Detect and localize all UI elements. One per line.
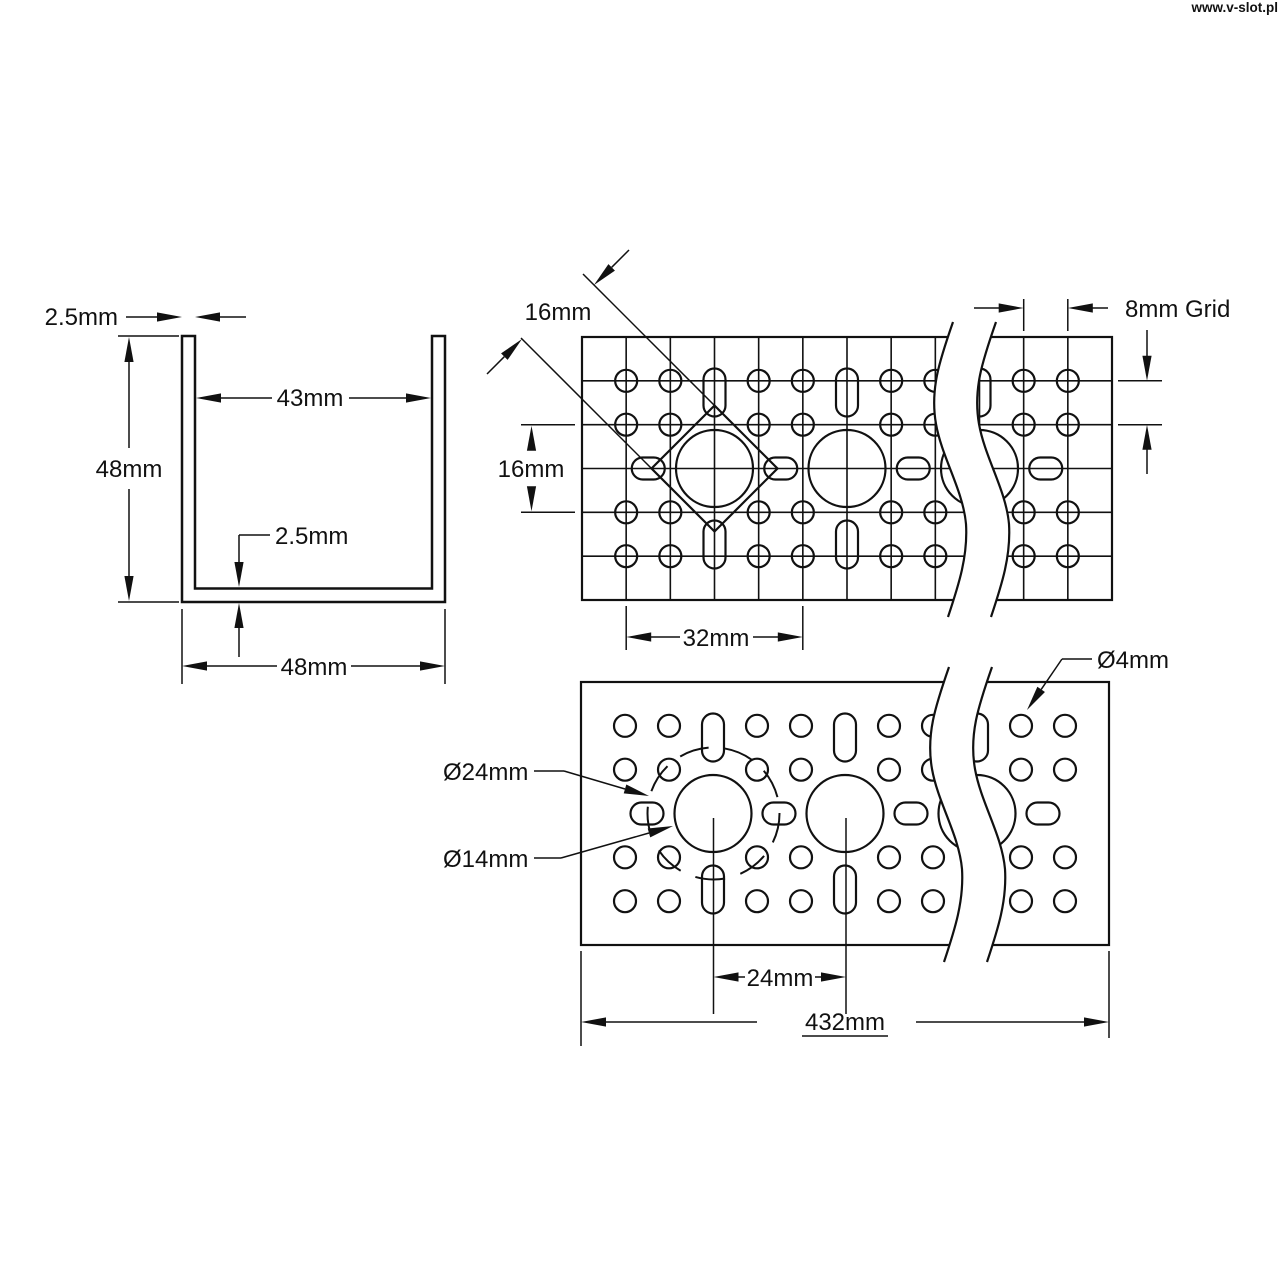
dimension-line [612, 250, 629, 267]
dimension-arrowhead [1142, 425, 1151, 450]
cross-section-view: 2.5mm 43mm 48mm 2.5mm 48mm [45, 304, 445, 684]
small-hole [614, 890, 636, 912]
dimension-arrowhead [1068, 303, 1093, 312]
small-hole [1054, 846, 1076, 868]
dim-square-size-label: 16mm [525, 299, 592, 326]
small-hole [614, 759, 636, 781]
dimension-arrowhead [527, 486, 536, 511]
dimension-arrowhead [1027, 687, 1045, 710]
vertical-slot [834, 714, 856, 762]
dimension-arrowhead [778, 632, 803, 641]
plate-view: Ø4mm Ø24mm Ø14mm 24mm 432mm [443, 647, 1169, 1046]
small-hole [746, 715, 768, 737]
dim-bolt-circle-label: Ø24mm [443, 759, 528, 786]
u-channel-outline [182, 336, 445, 602]
small-hole [922, 846, 944, 868]
dim-height-label: 48mm [96, 456, 163, 483]
face-grid-view: 16mm 16mm 32mm 8mm Grid [487, 250, 1230, 652]
small-hole [658, 715, 680, 737]
horizontal-slot [895, 803, 928, 825]
small-hole [878, 846, 900, 868]
dimension-arrowhead [234, 603, 243, 628]
small-hole [790, 890, 812, 912]
dim-32mm-label: 32mm [683, 625, 750, 652]
plate-hole-pattern [614, 714, 1076, 914]
dimension-line [487, 357, 504, 374]
dim-inner-width-label: 43mm [277, 385, 344, 412]
small-hole [1010, 715, 1032, 737]
dimension-arrowhead [626, 632, 651, 641]
dimension-arrowhead [124, 337, 133, 362]
small-hole [1054, 715, 1076, 737]
small-hole [1010, 759, 1032, 781]
small-hole [658, 759, 680, 781]
dimension-arrowhead [648, 826, 673, 837]
dimension-line [1041, 659, 1062, 689]
small-hole [790, 759, 812, 781]
watermark: www.v-slot.pl [1190, 0, 1278, 15]
small-hole [1054, 890, 1076, 912]
break-lines-bottom [930, 667, 1005, 962]
break-blank-band [934, 322, 1009, 617]
small-hole [878, 890, 900, 912]
dimension-arrowhead [234, 562, 243, 587]
dim-24mm-label: 24mm [747, 965, 814, 992]
dim-row-spacing-label: 16mm [498, 456, 565, 483]
dimension-arrowhead [999, 303, 1024, 312]
small-hole [746, 890, 768, 912]
small-hole [1010, 846, 1032, 868]
small-hole [658, 846, 680, 868]
small-hole [922, 890, 944, 912]
vertical-slot [834, 866, 856, 914]
small-hole [878, 759, 900, 781]
small-hole [658, 890, 680, 912]
small-hole [878, 715, 900, 737]
small-hole [746, 846, 768, 868]
dim-outer-width-label: 48mm [281, 654, 348, 681]
u-channel-technical-drawing: 2.5mm 43mm 48mm 2.5mm 48mm 16mm 16mm 32m… [0, 0, 1280, 1280]
dim-floor-thickness-label: 2.5mm [275, 523, 348, 550]
dimension-arrowhead [714, 972, 739, 981]
dimension-arrowhead [527, 426, 536, 451]
small-hole [1010, 890, 1032, 912]
dim-center-hole-label: Ø14mm [443, 846, 528, 873]
grid-lines [582, 337, 1112, 600]
break-lines-top [934, 322, 1009, 617]
break-blank-band [930, 667, 1005, 962]
dimension-arrowhead [1084, 1017, 1109, 1026]
dim-wall-thickness-label: 2.5mm [45, 304, 118, 331]
small-hole [1054, 759, 1076, 781]
plate-view-outline [581, 682, 1109, 945]
dimension-line [583, 274, 715, 406]
technical-drawing-page: 2.5mm 43mm 48mm 2.5mm 48mm 16mm 16mm 32m… [0, 0, 1280, 1280]
small-hole [790, 846, 812, 868]
dimension-arrowhead [406, 393, 431, 402]
dimension-arrowhead [196, 393, 221, 402]
horizontal-slot [1027, 803, 1060, 825]
small-hole [790, 715, 812, 737]
dim-small-hole-label: Ø4mm [1097, 647, 1169, 674]
dimension-arrowhead [157, 312, 182, 321]
dimension-arrowhead [821, 972, 846, 981]
dimension-arrowhead [581, 1017, 606, 1026]
dim-grid-label: 8mm Grid [1125, 296, 1230, 323]
small-hole [614, 846, 636, 868]
small-hole [614, 715, 636, 737]
dim-overall-length-label: 432mm [805, 1009, 885, 1036]
cross-section-dimensions [118, 312, 445, 684]
vertical-slot [702, 714, 724, 762]
dimension-arrowhead [624, 785, 649, 796]
center-hole [807, 775, 884, 852]
dimension-arrowhead [420, 661, 445, 670]
dimension-line [521, 338, 652, 469]
dimension-arrowhead [182, 661, 207, 670]
dimension-arrowhead [195, 312, 220, 321]
dimension-arrowhead [124, 576, 133, 601]
dimension-arrowhead [1142, 356, 1151, 381]
small-hole [746, 759, 768, 781]
